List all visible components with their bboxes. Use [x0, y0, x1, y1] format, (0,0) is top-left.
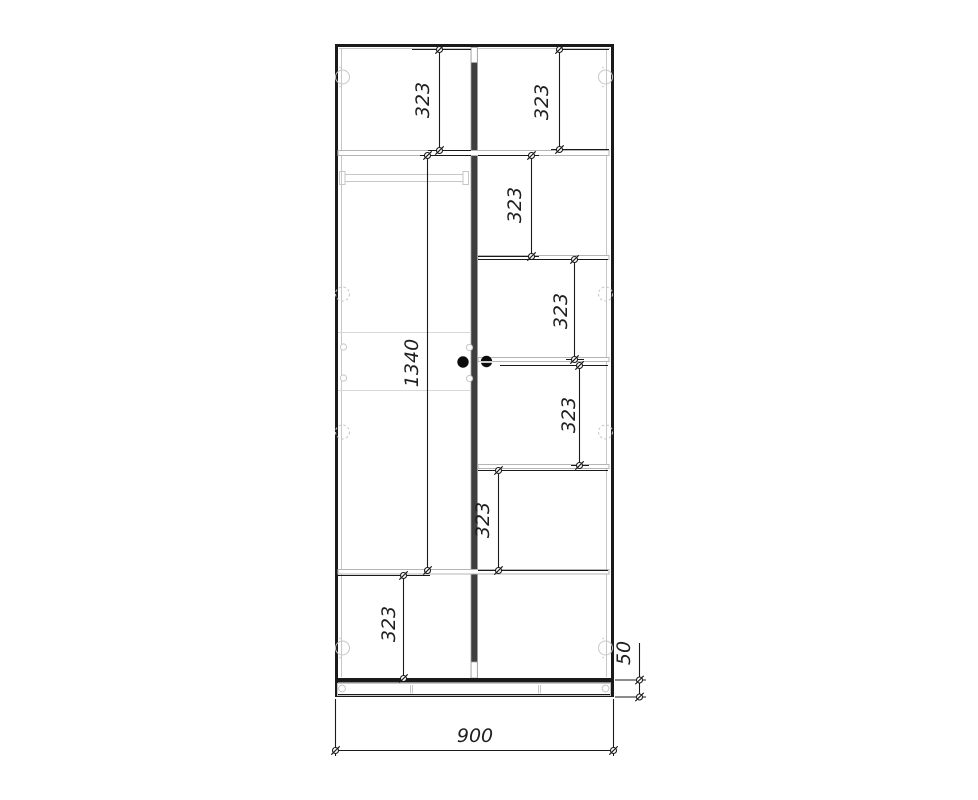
bottom-shelf-panel [336, 678, 612, 683]
dim-terminator-icon [635, 693, 643, 701]
dim-plinth-height: 50 [613, 641, 646, 701]
dim-label: 1340 [401, 339, 423, 387]
dim-label: 323 [550, 293, 572, 329]
dim-terminator-icon [635, 676, 643, 684]
dim-terminator-icon [331, 746, 339, 754]
cabinet-body [336, 46, 613, 696]
shelf-top-full-width [338, 151, 609, 156]
center-divider-bottom-cap [471, 662, 477, 678]
pin-hole-icon [340, 344, 346, 350]
center-divider-top-cap [471, 48, 477, 63]
dim-label: 323 [472, 502, 494, 538]
dim-label: 323 [378, 606, 400, 642]
pin-hole-icon [466, 375, 472, 381]
dim-overall-width: 900 [331, 699, 617, 756]
pin-hole-icon [340, 375, 346, 381]
pin-hole-icon [466, 344, 472, 350]
left-door-handle [457, 356, 468, 367]
dim-label: 323 [558, 397, 580, 433]
center-divider-panel [471, 48, 478, 679]
shelf-right-3 [478, 358, 609, 362]
dim-label: 323 [412, 82, 434, 118]
dim-label: 900 [457, 725, 493, 747]
dim-label: 323 [504, 187, 526, 223]
dim-label: 323 [531, 84, 553, 120]
wardrobe-drawing: 323 323 323 323 [0, 0, 978, 800]
dim-terminator-icon [609, 746, 617, 754]
technical-drawing-canvas: 323 323 323 323 [0, 0, 978, 800]
dim-label: 50 [613, 641, 635, 665]
